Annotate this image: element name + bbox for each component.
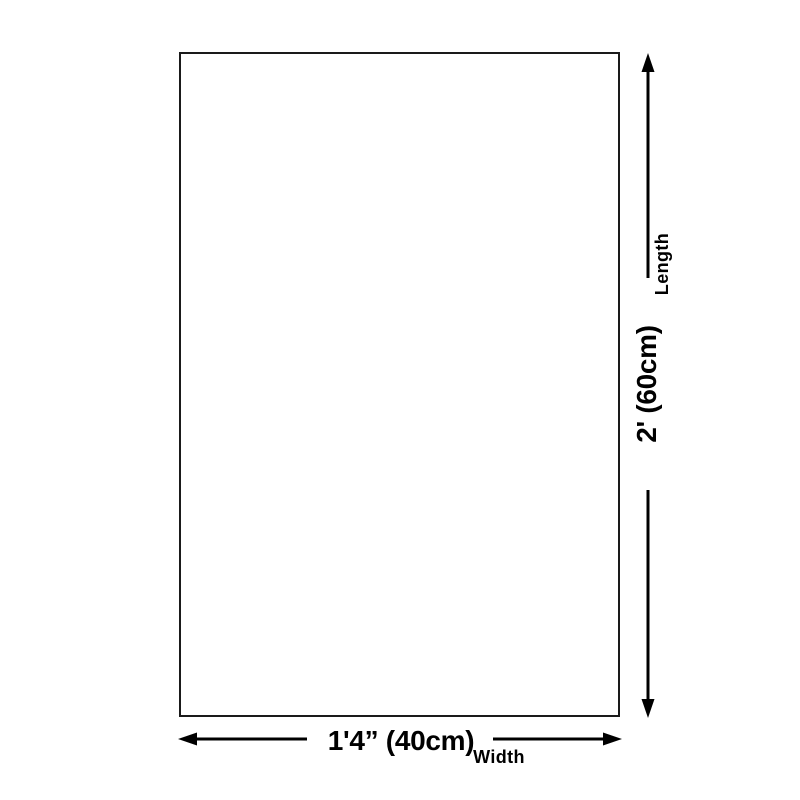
- product-outline-rectangle: [179, 52, 620, 717]
- width-value: 1'4” (40cm): [328, 727, 475, 755]
- dimension-diagram: Length 2' (60cm) 1'4” (40cm) Width: [0, 0, 800, 800]
- length-value: 2' (60cm): [633, 325, 661, 443]
- length-label: Length: [653, 233, 671, 295]
- width-label: Width: [473, 748, 525, 766]
